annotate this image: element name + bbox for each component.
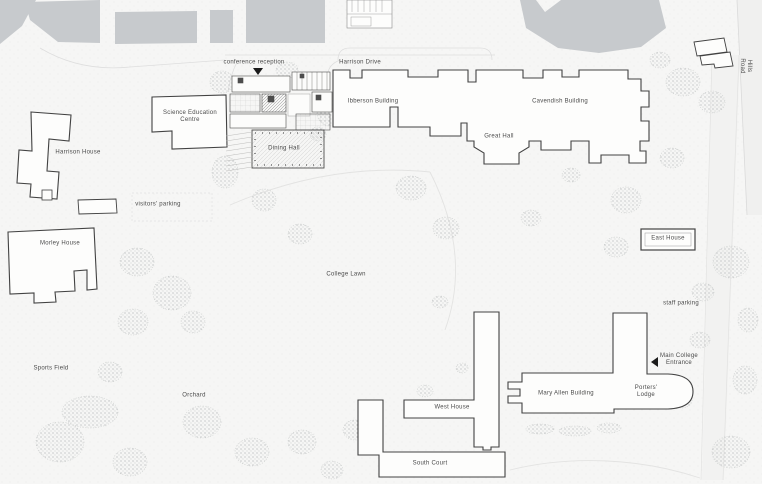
building-east-house (641, 229, 695, 250)
main-entrance-marker-icon (651, 357, 658, 367)
dining-hall-outline (252, 130, 324, 168)
context-building-north-1 (115, 11, 197, 44)
site-plan-canvas (0, 0, 762, 484)
context-plan-fragment (347, 0, 392, 28)
conference-reception-marker-icon (253, 68, 263, 75)
building-harrison-house-annex (42, 190, 52, 200)
college-site-plan: conference reception Harrison Drive Ibbe… (0, 0, 762, 484)
context-building-north-3 (246, 0, 325, 43)
building-harrison-house-outbuilding (78, 199, 117, 214)
context-building-north-2 (210, 10, 233, 43)
